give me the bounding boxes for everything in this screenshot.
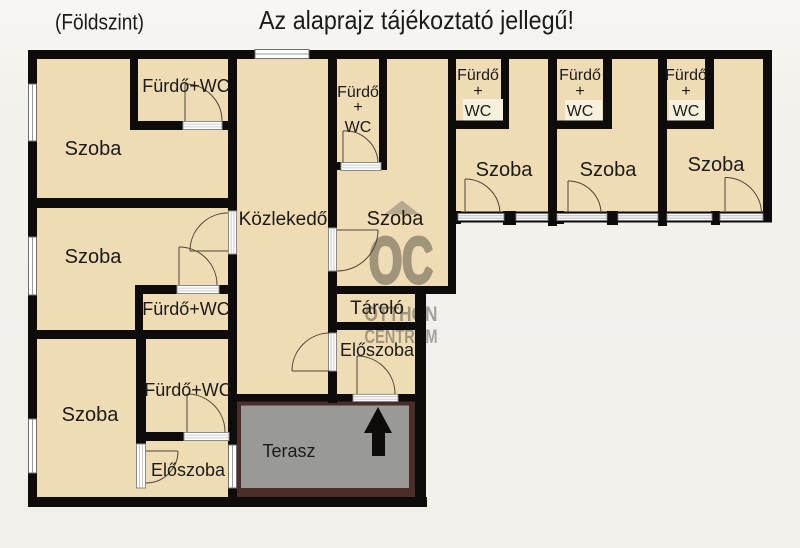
svg-text:Terasz: Terasz [262,441,315,461]
svg-text:+: + [575,83,584,100]
svg-text:+: + [681,83,690,100]
svg-text:+: + [473,83,482,100]
svg-text:Fürdő+WC: Fürdő+WC [144,380,232,400]
svg-text:WC: WC [345,119,372,136]
svg-text:Fürdő+WC: Fürdő+WC [142,76,230,96]
svg-text:Az alaprajz tájékoztató jelleg: Az alaprajz tájékoztató jellegű! [259,5,574,35]
svg-text:Előszoba: Előszoba [340,340,415,360]
svg-text:Közlekedő: Közlekedő [239,209,328,230]
svg-text:Tároló: Tároló [350,298,404,319]
svg-text:Előszoba: Előszoba [151,460,226,480]
svg-text:Szoba: Szoba [65,138,123,160]
svg-text:Fürdő: Fürdő [559,67,601,84]
svg-text:WC: WC [567,103,594,120]
svg-text:Szoba: Szoba [367,208,425,230]
svg-text:Fürdő+WC: Fürdő+WC [142,299,230,319]
svg-text:Fürdő: Fürdő [665,67,707,84]
svg-text:Szoba: Szoba [65,246,123,268]
svg-text:(Földszint): (Földszint) [55,10,144,35]
svg-text:+: + [353,99,362,116]
svg-text:Szoba: Szoba [580,159,638,181]
svg-text:Szoba: Szoba [476,159,534,181]
svg-text:Fürdő: Fürdő [457,67,499,84]
svg-text:Szoba: Szoba [688,154,746,176]
svg-text:WC: WC [673,103,700,120]
svg-text:WC: WC [465,103,492,120]
svg-text:Szoba: Szoba [62,404,120,426]
